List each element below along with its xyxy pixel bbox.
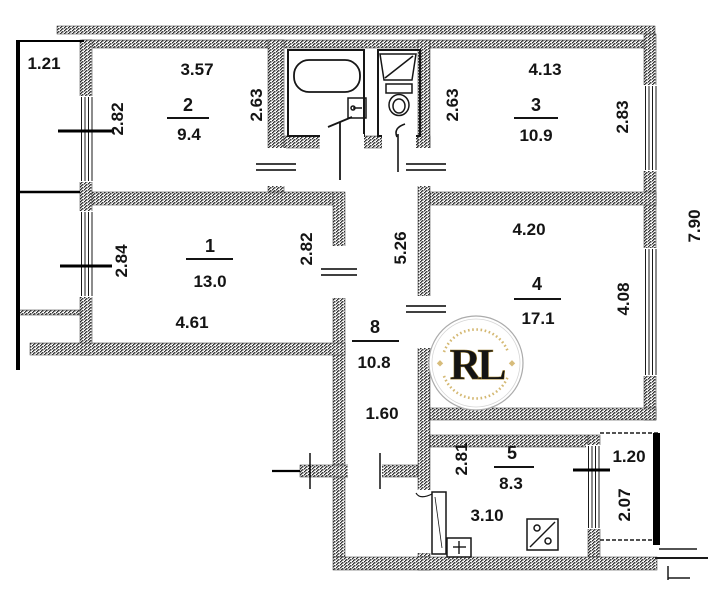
label-hall8-bottom: 1.60 [365, 404, 398, 423]
label-room3-right: 2.83 [613, 100, 632, 133]
label-room2-area: 9.4 [177, 125, 201, 144]
label-room4-number: 4 [532, 274, 542, 294]
label-room3-left: 2.63 [443, 88, 462, 121]
label-balcony-br-width: 1.20 [612, 447, 645, 466]
label-kitchen5-number: 5 [507, 443, 517, 463]
label-room3-top: 4.13 [528, 60, 561, 79]
label-room2-right: 2.63 [247, 88, 266, 121]
door-room3-gap [416, 148, 432, 186]
label-balcony-left-width: 1.21 [27, 54, 60, 73]
wall-room4-bottom [430, 408, 656, 420]
label-room2-top: 3.57 [180, 60, 213, 79]
label-room1-bottom: 4.61 [175, 313, 208, 332]
wall-room3-bottom [430, 192, 656, 205]
label-kitchen5-bottom: 3.10 [470, 506, 503, 525]
wall-left-exterior [80, 40, 92, 355]
floor-plan: 1.21 3.57 2 9.4 2.82 2.63 4.13 3 10.9 2.… [0, 0, 709, 600]
label-room1-area: 13.0 [193, 272, 226, 291]
door-room1-gap [331, 246, 347, 298]
wall-room1-bottom [30, 343, 345, 355]
label-room1-left: 2.84 [112, 244, 131, 278]
wall-bottom-exterior [333, 557, 657, 570]
label-room4-area: 17.1 [521, 309, 554, 328]
label-hall8-number: 8 [370, 317, 380, 337]
label-room1-number: 1 [205, 236, 215, 256]
door-bath-gap [320, 134, 364, 150]
balcony-right-rail [653, 433, 660, 545]
label-balcony-br-depth: 2.07 [615, 488, 634, 521]
label-hall8-right: 5.26 [391, 231, 410, 264]
door-room2-gap [266, 148, 286, 186]
balcony-left-rail [16, 40, 20, 370]
label-room4-top: 4.20 [512, 220, 545, 239]
label-kitchen5-left: 2.81 [452, 442, 471, 475]
wall-top-outer [57, 26, 655, 34]
label-room2-number: 2 [183, 95, 193, 115]
label-room3-area: 10.9 [519, 126, 552, 145]
watermark-badge: RL [429, 316, 523, 410]
watermark-initials: RL [449, 340, 505, 389]
wall-top-inner [82, 40, 655, 48]
paper-background [0, 0, 709, 600]
label-room2-left: 2.82 [108, 102, 127, 135]
door-room4-gap [416, 296, 432, 348]
door-wc-gap [382, 134, 416, 150]
label-hall8-area: 10.8 [357, 353, 390, 372]
wall-balcony-left-bottom [18, 310, 80, 315]
wall-room1-room2-divider [92, 192, 333, 205]
floor-plan-drawing: 1.21 3.57 2 9.4 2.82 2.63 4.13 3 10.9 2.… [0, 0, 709, 600]
label-building-right: 7.90 [685, 209, 704, 242]
door-entrance-gap [348, 463, 382, 479]
label-room4-right: 4.08 [614, 282, 633, 315]
label-room3-number: 3 [531, 95, 541, 115]
label-room1-right: 2.82 [297, 232, 316, 265]
door-kitchen-gap [416, 490, 432, 553]
label-kitchen5-area: 8.3 [499, 474, 523, 493]
